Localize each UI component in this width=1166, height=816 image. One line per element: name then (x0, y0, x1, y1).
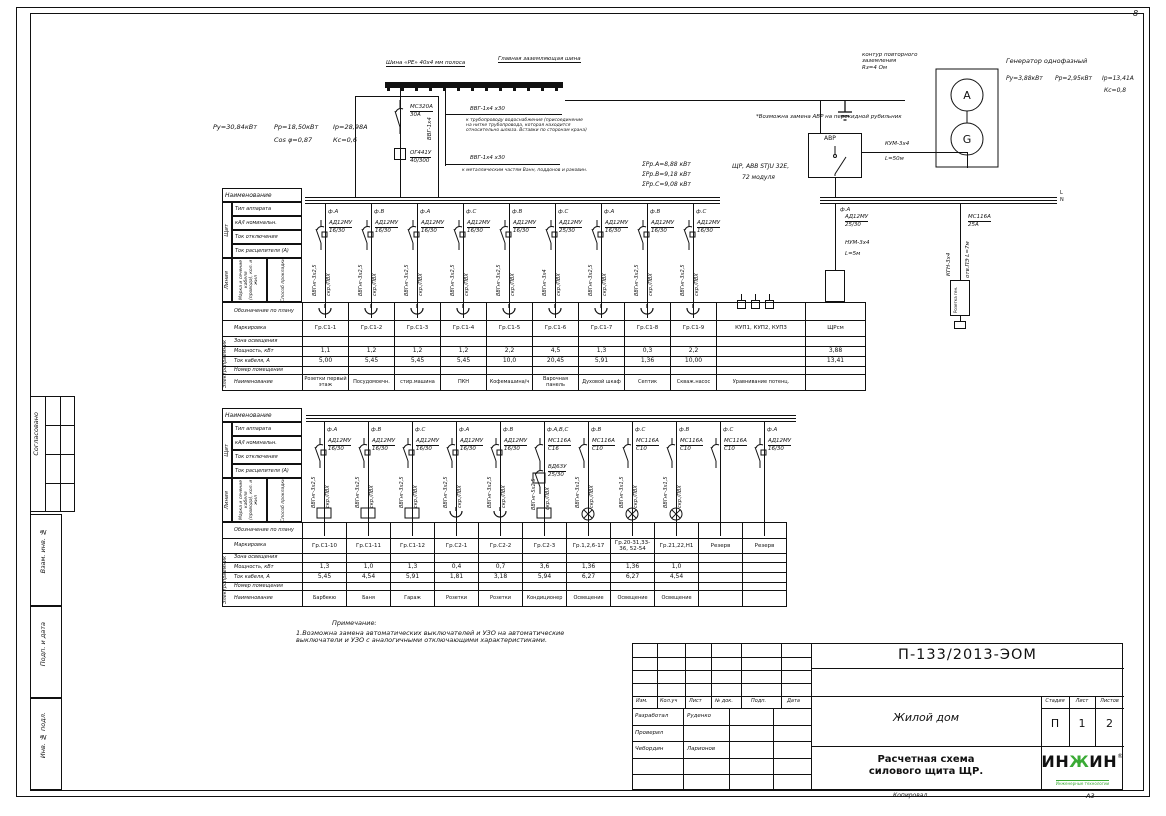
header-group-text: Линия (224, 271, 230, 289)
phase-label: ф.В (374, 209, 384, 215)
table-cell-mark: Гр.С1-7 (579, 321, 625, 337)
breaker-label: АД12МУ16/30 (504, 438, 527, 452)
avr-switch-icon (808, 146, 862, 176)
table-cell-mark: Гр.С1-5 (487, 321, 533, 337)
gen-plug-icon (954, 321, 966, 329)
table-cell-current: 1,36 (625, 357, 671, 367)
table-cell-empty (347, 523, 391, 539)
gzsh-left-label: Шина «PE» 40х4 мм полоса (386, 60, 465, 67)
table-cell-power: 1,0 (655, 563, 699, 573)
table-cell-mark: Гр.С2-3 (523, 539, 567, 554)
gen-socket-route: отв.ПЭ L=7м (966, 244, 972, 278)
cable-route-label: скр./ПВХ (327, 250, 332, 296)
table-cell-empty (523, 554, 567, 563)
table-cell-empty (487, 303, 533, 321)
copied-label: Копировал (893, 793, 927, 800)
phase-label: ф.А (327, 427, 337, 433)
table-cell-empty (435, 554, 479, 563)
breaker-icon (708, 438, 724, 468)
table-row-label: Мощность, кВт (223, 347, 303, 357)
header-group-label: Щит (222, 422, 232, 478)
reserve-phase-label: ф.А (840, 207, 850, 213)
table-cell-empty (391, 523, 435, 539)
breaker-icon (451, 220, 467, 250)
table-cell-power: 1,36 (567, 563, 611, 573)
table-cell-current (699, 573, 743, 583)
table-cell-empty (671, 337, 717, 347)
table-cell-mark: Гр.С2-2 (479, 539, 523, 554)
table-cell-power (743, 563, 787, 573)
breaker-icon (664, 438, 680, 468)
table-cell-power: 1,3 (391, 563, 435, 573)
supply-pr: Рр=18,50кВт (274, 124, 318, 131)
supply-pu: Ру=30,84кВт (213, 124, 257, 131)
table-cell-mark: Гр.20-31,33-36, 52-54 (611, 539, 655, 554)
consumer-group-label: Электроприемник (223, 524, 228, 604)
header-row-label: Ток расцепителя (А) (232, 464, 302, 478)
table-cell-current (717, 357, 806, 367)
header-row-label: Наименование (222, 408, 302, 422)
table-cell-empty (349, 303, 395, 321)
sig-name-1: Руденко (687, 713, 711, 719)
breaker-label: МС116АС10 (636, 438, 659, 452)
table-cell-empty (655, 554, 699, 563)
bus-l-label: L (1060, 191, 1063, 197)
table-cell-empty (717, 337, 806, 347)
cable-label: ВВГнг-3х2,5 (312, 468, 317, 508)
phase-label: ф.В (371, 427, 381, 433)
panel-sum-a: ΣРр.А=8,88 кВт (642, 162, 691, 169)
table-row-label: Зона освещения (223, 554, 303, 563)
breaker-label: АД12МУ16/30 (651, 220, 674, 234)
table-cell-empty (435, 583, 479, 591)
table-cell-empty (533, 303, 579, 321)
table-cell-mark: КУП1, КУП2, КУП3 (717, 321, 806, 337)
table-cell-power: 0,4 (435, 563, 479, 573)
table-cell-power: 0,7 (479, 563, 523, 573)
phase-label: ф.С (466, 209, 476, 215)
generator-ir: Iр=13,41А (1102, 76, 1134, 83)
logo-reg-mark: ® (1117, 753, 1124, 760)
table-cell-empty (441, 367, 487, 375)
table-cell-empty (699, 523, 743, 539)
header-group-text: Способ прокладки (282, 478, 287, 522)
cable-label: ВВГнг-3х2,5 (400, 468, 405, 508)
table-cell-power (717, 347, 806, 357)
reserve-busbar (820, 197, 1057, 204)
table-cell-empty (611, 523, 655, 539)
table-cell-current: 5,45 (395, 357, 441, 367)
gen-socket-cable: КГН-3х4 (947, 244, 953, 276)
table-cell-empty (303, 583, 347, 591)
table-row-label: Наименование (223, 591, 303, 607)
header-row-label: кА/I номинальн. (232, 436, 302, 450)
cable-label: ВВГнг-3х2,5 (589, 250, 594, 296)
table-row-label: Мощность, кВт (223, 563, 303, 573)
header-group-label: Щит (222, 202, 232, 258)
phase-label: ф.А,В,С (547, 427, 568, 433)
svg-text:G: G (963, 133, 972, 146)
gen-socket-label: Розетка ген. (954, 283, 959, 313)
load-box-icon (316, 507, 332, 519)
table-cell-mark: Резерв (699, 539, 743, 554)
table-row-label: Обозначение по плану (223, 523, 303, 539)
table-cell-empty (567, 583, 611, 591)
table-cell-empty (611, 554, 655, 563)
breaker-icon (589, 220, 605, 250)
breaker-label: МС116АС10 (592, 438, 615, 452)
stamp-approved-label: Согласовано (33, 412, 40, 456)
phase-label: ф.А (420, 209, 430, 215)
table-cell-empty (303, 303, 349, 321)
sheets-value: 2 (1095, 718, 1124, 731)
phase-label: ф.А (459, 427, 469, 433)
table-cell-empty (395, 337, 441, 347)
rev-header-izm: Изм. (636, 699, 648, 705)
cable-label: ВВГнг-3х2,5 (356, 468, 361, 508)
breaker-label: АД12МУ16/30 (460, 438, 483, 452)
table-cell-empty (395, 367, 441, 375)
table-cell-empty (717, 303, 806, 321)
table-cell-mark: Гр.С1-8 (625, 321, 671, 337)
table-cell-name: Освещение (655, 591, 699, 607)
table-cell-power: 2,2 (671, 347, 717, 357)
table-cell-empty (523, 523, 567, 539)
table-cell-power: 1,2 (395, 347, 441, 357)
table-cell-current: 13,41 (806, 357, 866, 367)
avr-gen-cable-length: L=50м (885, 156, 904, 162)
table-cell-empty (479, 523, 523, 539)
table-cell-empty (523, 583, 567, 591)
table-cell-power: 1,3 (303, 563, 347, 573)
second-busbar (306, 415, 796, 422)
table-cell-name (699, 591, 743, 607)
table-cell-mark: Гр.С1-1 (303, 321, 349, 337)
breaker-icon (444, 438, 460, 468)
corner-mark: 8 (1133, 9, 1138, 18)
table-cell-empty (655, 523, 699, 539)
company-logo: ИНЖИН® Инженерные технологии (1041, 746, 1124, 791)
rev-header-koluch: Кол.уч (660, 699, 677, 705)
table-cell-name (743, 591, 787, 607)
header-group-label: Линия (222, 478, 232, 522)
table-cell-empty (625, 367, 671, 375)
table-cell-mark: Гр.С1-10 (303, 539, 347, 554)
stamp-podp-label: Подп. и дата (40, 622, 47, 666)
header-group-label: Линия (222, 258, 232, 302)
avr-gen-cable: КУМ-3х4 (885, 141, 909, 147)
cable-route-label: скр./ПВХ (511, 250, 516, 296)
table-cell-empty (349, 367, 395, 375)
socket-icon (448, 507, 464, 520)
table-cell-current: 5,91 (579, 357, 625, 367)
cable-route-label: скр./ПВХ (370, 468, 375, 508)
shrsm-box (825, 270, 845, 302)
gzsh-bus-clamps (387, 88, 561, 91)
breaker-label: АД12МУ16/30 (372, 438, 395, 452)
table-cell-current: 3,18 (479, 573, 523, 583)
drawing-title: Расчетная схема силового щита ЩР. (811, 754, 1041, 777)
breaker-icon (620, 438, 636, 468)
lamp-icon (625, 507, 639, 521)
cable-route-label: скр./ПВХ (590, 468, 595, 508)
table-cell-power: 1,2 (349, 347, 395, 357)
table-cell-power: 1,1 (303, 347, 349, 357)
table-cell-mark: Гр.С1-2 (349, 321, 395, 337)
breaker-label: АД12МУ16/30 (329, 220, 352, 234)
table-cell-empty (395, 303, 441, 321)
phase-label: ф.С (635, 427, 645, 433)
sheet-label: Лист (1069, 699, 1095, 705)
table-cell-current: 20,45 (533, 357, 579, 367)
panel-sum-b: ΣРр.В=9,18 кВт (642, 172, 691, 179)
sheets-label: Листов (1095, 699, 1124, 705)
breaker-label: АД12МУ16/30 (768, 438, 791, 452)
logo-subtitle: Инженерные технологии (1056, 780, 1109, 786)
breaker-icon (313, 220, 329, 250)
table-cell-empty (743, 523, 787, 539)
table-cell-power: 1,0 (347, 563, 391, 573)
generator-kc: Кс=0,8 (1104, 88, 1126, 95)
object-name: Жилой дом (811, 712, 1041, 725)
table-cell-current: 4,54 (655, 573, 699, 583)
avr-label: АВР (824, 136, 836, 143)
cable-route-label: скр./ПВХ (649, 250, 654, 296)
header-row-label: Ток отключения (232, 230, 302, 244)
rev-header-data: Дата (787, 699, 800, 705)
table-cell-name: Септик (625, 375, 671, 391)
header-group-text: Щит (224, 444, 230, 457)
phase-label: ф.В (512, 209, 522, 215)
breaker-icon (405, 220, 421, 250)
table-cell-empty (303, 337, 349, 347)
socket-icon (492, 507, 508, 520)
sheet-value: 1 (1069, 718, 1095, 731)
logo-part1: ИН (1041, 752, 1069, 771)
sig-role-3: Чебордин (635, 746, 663, 752)
table-cell-empty (579, 337, 625, 347)
header-group-text: Способ прокладки (282, 258, 287, 302)
phase-label: ф.С (558, 209, 568, 215)
cable-route-label: скр./ПВХ (458, 468, 463, 508)
earth-icon (837, 100, 853, 126)
table-cell-power: 3,88 (806, 347, 866, 357)
table-cell-empty (479, 583, 523, 591)
table-cell-empty (655, 583, 699, 591)
load-box-icon (360, 507, 376, 519)
table-cell-name: Розетки (435, 591, 479, 607)
breaker-label: АД12МУ25/30 (559, 220, 582, 234)
stage-value: П (1041, 718, 1069, 731)
table-cell-name: ПКН (441, 375, 487, 391)
cable-label: ВВГнг-3х2,5 (488, 468, 493, 508)
lamp-icon (669, 507, 683, 521)
gen-socket-breaker-label: МС116А25А (968, 214, 991, 228)
breaker-icon (497, 220, 513, 250)
breaker-label: МС116АС10 (680, 438, 703, 452)
phase-label: ф.А (767, 427, 777, 433)
table-row-label: Обозначение по плану (223, 303, 303, 321)
header-group-label: Способ прокладки (267, 478, 302, 522)
phase-label: ф.А (604, 209, 614, 215)
sig-role-2: Проверил (635, 730, 663, 736)
breaker-label: АД12МУ16/30 (467, 220, 490, 234)
table-cell-current: 5,91 (391, 573, 435, 583)
avr-note: *Возможна замена АВР на перекидной рубил… (756, 114, 902, 120)
table-cell-empty (743, 583, 787, 591)
cable-label: ВВГнг-3х2,5 (497, 250, 502, 296)
table-cell-mark: Гр.С1-12 (391, 539, 435, 554)
format-label: А3 (1086, 793, 1095, 800)
table-cell-mark: Гр.1,2,6-17 (567, 539, 611, 554)
gzsh-branch1-note: к трубопроводу водоснабжения (присоедине… (466, 118, 588, 134)
table-cell-name: Скваж.насос (671, 375, 717, 391)
breaker-icon (359, 220, 375, 250)
supply-cos: Cos φ=0,87 (274, 137, 312, 144)
table-cell-empty (391, 554, 435, 563)
load-box-icon (404, 507, 420, 519)
table-cell-empty (533, 337, 579, 347)
table-cell-power: 1,2 (441, 347, 487, 357)
phase-label: ф.А (328, 209, 338, 215)
table-cell-current: 4,54 (347, 573, 391, 583)
rev-header-podp: Подп. (751, 699, 766, 705)
cable-label: ВВГнг-3х2,5 (681, 250, 686, 296)
breaker-icon (312, 438, 328, 468)
bus-n-label: N (1060, 198, 1064, 204)
table-cell-empty (579, 367, 625, 375)
table-cell-mark: Гр.21,22,Н1 (655, 539, 699, 554)
stage-label: Стадия (1041, 699, 1069, 705)
table-cell-name: Посудомоечн. (349, 375, 395, 391)
avr-out-breaker-label: АД12МУ25/30 (845, 214, 868, 228)
logo-part2: ИН (1089, 752, 1117, 771)
circuit-table: Обозначение по плануМаркировкаГр.С1-1Гр.… (222, 302, 866, 391)
table-cell-mark: Гр.С1-11 (347, 539, 391, 554)
breaker-label: АД12МУ16/30 (421, 220, 444, 234)
stamp-vzam-label: Взам. инв. № (40, 528, 47, 573)
gzsh-branch2-cable: ВВГ-1х4 х30 (470, 155, 505, 161)
cable-route-label: скр./ПВХ (419, 250, 424, 296)
header-row-label: Ток отключения (232, 450, 302, 464)
drawing-sheet: 8 Согласовано Взам. инв. № Подп. и дата … (0, 0, 1166, 816)
table-cell-empty (487, 337, 533, 347)
table-cell-name: Барбекю (303, 591, 347, 607)
breaker-icon (681, 220, 697, 250)
panel-sum-c: ΣРр.С=9,08 кВт (642, 182, 691, 189)
table-cell-current: 10,0 (487, 357, 533, 367)
cable-route-label: скр./ПВХ (603, 250, 608, 296)
gzsh-branch1-cable: ВВГ-1х4 х30 (470, 106, 505, 112)
table-cell-mark: Гр.С1-4 (441, 321, 487, 337)
breaker-label: АД12МУ16/30 (513, 220, 536, 234)
main-rcd-label: ОГ441У40/300 (410, 150, 431, 164)
breaker-icon (752, 438, 768, 468)
table-cell-name: Варочная панель (533, 375, 579, 391)
table-cell-name: Розетки (479, 591, 523, 607)
gzsh-riser-cable-label: ВВГ-1х4 (428, 100, 434, 140)
table-row-label: Номер помещения (223, 367, 303, 375)
table-cell-current: 10,00 (671, 357, 717, 367)
table-cell-power: 0,3 (625, 347, 671, 357)
header-group-text: Марка и сечение кабеля (провода), кол. и… (240, 259, 260, 301)
phase-label: ф.С (415, 427, 425, 433)
table-cell-empty (347, 554, 391, 563)
gzsh-right-label: Главная заземляющая шина (498, 56, 581, 63)
breaker-icon (576, 438, 592, 468)
table-cell-empty (435, 523, 479, 539)
cable-route-label: скр./ПВХ (326, 468, 331, 508)
svg-text:А: А (963, 89, 971, 102)
generator-pr: Рр=2,95кВт (1055, 76, 1092, 83)
table-row-label: Маркировка (223, 539, 303, 554)
cable-label: ВВГнг-3х2,5 (405, 250, 410, 296)
avr-out-cable: НУМ-3х4 (845, 240, 869, 246)
table-cell-current: 5,45 (303, 573, 347, 583)
cable-label: ВВГнг-3х1,5 (664, 468, 669, 508)
header-group-label: Способ прокладки (267, 258, 302, 302)
breaker-icon (356, 438, 372, 468)
generator-pu: Ру=3,88кВт (1006, 76, 1043, 83)
table-cell-current: 5,45 (441, 357, 487, 367)
lamp-icon (581, 507, 595, 521)
cable-label: ВВГнг-3х1,5 (576, 468, 581, 508)
table-cell-power: 1,36 (611, 563, 655, 573)
table-cell-empty (671, 367, 717, 375)
table-cell-empty (441, 303, 487, 321)
table-cell-name: Розетки первый этаж (303, 375, 349, 391)
sig-role-1: Разработал (635, 713, 668, 719)
breaker-label: АД12МУ16/30 (375, 220, 398, 234)
main-breaker-icon (392, 100, 408, 134)
cable-label: ВВГнг-3х1,5 (620, 468, 625, 508)
supply-kc: Кс=0,6 (333, 137, 357, 144)
logo-zh: Ж (1069, 752, 1089, 771)
notes-body: 1.Возможна замена автоматических выключа… (296, 630, 564, 645)
doc-number: П-133/2013-ЭОМ (811, 647, 1124, 664)
table-cell-current: 5,45 (349, 357, 395, 367)
phase-label: ф.В (503, 427, 513, 433)
header-row-label: Ток расцепителя (А) (232, 244, 302, 258)
title-block: Изм. Кол.уч Лист № док. Подп. Дата Разра… (632, 643, 1123, 790)
table-row-label: Номер помещения (223, 583, 303, 591)
phase-label: ф.В (591, 427, 601, 433)
phase-label: ф.С (723, 427, 733, 433)
rcd-label: ВД63У25/30 (548, 464, 566, 478)
table-cell-name (806, 375, 866, 391)
cable-label: ВВГнг-3х4 (543, 250, 548, 296)
circuit-table: Обозначение по плануМаркировкаГр.С1-10Гр… (222, 522, 787, 607)
table-cell-empty (611, 583, 655, 591)
header-group-text: Марка и сечение кабеля (провода), кол. и… (240, 479, 260, 521)
table-cell-empty (347, 583, 391, 591)
stamp-inv-label: Инв. № подл. (40, 712, 47, 758)
cable-route-label: скр./ПВХ (465, 250, 470, 296)
panel-modules: 72 модуля (742, 175, 775, 182)
table-cell-current (743, 573, 787, 583)
table-cell-empty (625, 337, 671, 347)
table-cell-power (699, 563, 743, 573)
table-cell-mark: Гр.С1-6 (533, 321, 579, 337)
cable-label: ВВГнг-3х2,5 (359, 250, 364, 296)
table-cell-empty (391, 583, 435, 591)
table-cell-name: Освещение (611, 591, 655, 607)
table-cell-empty (567, 554, 611, 563)
breaker-label: АД12МУ16/30 (605, 220, 628, 234)
table-cell-name: Кофемашина/ч (487, 375, 533, 391)
breaker-label: АД12МУ16/30 (416, 438, 439, 452)
consumer-group-label: Электроприемник (223, 304, 228, 388)
